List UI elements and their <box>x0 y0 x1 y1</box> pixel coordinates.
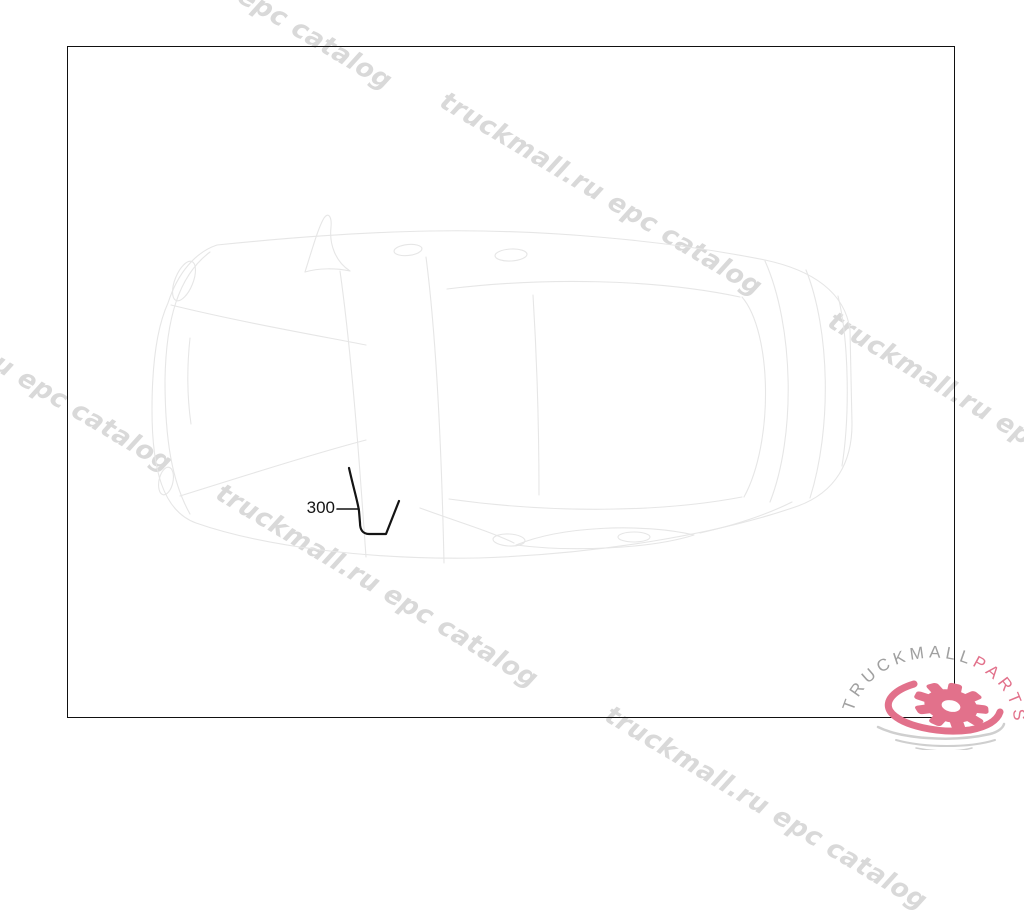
side-mirror-base <box>305 269 350 272</box>
door-handle-oval <box>495 248 528 262</box>
door-handle-oval <box>493 533 526 547</box>
car-top-view-sketch <box>152 215 852 563</box>
rear-window-curve <box>742 297 766 497</box>
part-300-outline[interactable] <box>349 468 399 534</box>
foglight-oval <box>156 466 176 496</box>
diagram-canvas: TRUCKMALLPARTS <box>0 0 1024 750</box>
roof-top-line <box>447 281 740 297</box>
trunk-arc <box>806 270 825 498</box>
trunk-lip-arc <box>838 296 847 466</box>
sill-inner-oval <box>618 532 650 542</box>
roof-bottom-line <box>449 497 742 509</box>
car-body-outline <box>152 231 852 558</box>
hood-crease-bottom <box>180 440 366 496</box>
part-number-label[interactable]: 300 <box>303 500 335 516</box>
epc-diagram-page: { "page": { "background": "#ffffff", "wi… <box>0 0 1024 750</box>
rear-deck-curve <box>765 261 788 502</box>
door-handle-oval <box>394 243 423 257</box>
rear-door-seam <box>700 502 792 533</box>
truckmall-logo: TRUCKMALLPARTS <box>839 642 1024 750</box>
hood-crease-top <box>171 305 366 345</box>
b-pillar-line <box>533 295 539 495</box>
door-seam <box>420 508 514 543</box>
side-mirror <box>305 215 350 272</box>
windshield-right-edge <box>426 257 444 563</box>
bumper-seam <box>188 338 191 424</box>
windshield-left-edge <box>340 271 366 557</box>
headlight-oval <box>168 258 200 304</box>
part-300-group[interactable] <box>337 468 399 534</box>
